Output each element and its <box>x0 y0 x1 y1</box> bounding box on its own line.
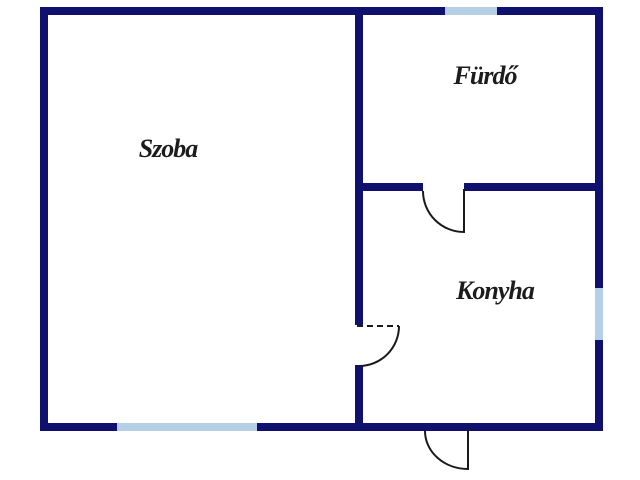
outer-wall-left <box>40 7 48 431</box>
room-label-szoba: Szoba <box>139 134 198 164</box>
outer-wall-top <box>40 7 603 15</box>
room-label-furdo: Fürdő <box>454 61 517 91</box>
window-right-kitchen <box>595 288 603 340</box>
window-bottom-room <box>117 423 257 431</box>
interior-wall-vertical-upper <box>355 15 363 325</box>
entrance-door <box>425 429 468 469</box>
bathroom-door <box>423 189 464 232</box>
interior-wall-horizontal-right <box>464 183 595 191</box>
floorplan-canvas: Szoba Fürdő Konyha <box>0 0 640 480</box>
room-label-konyha: Konyha <box>456 276 534 306</box>
window-top-bathroom <box>445 7 497 15</box>
interior-wall-horizontal-left <box>363 183 423 191</box>
kitchen-door-swing <box>359 326 399 366</box>
outer-walls <box>40 7 603 431</box>
floorplan-drawing <box>0 0 640 480</box>
outer-wall-right <box>595 7 603 431</box>
interior-wall-vertical-lower <box>355 365 363 423</box>
